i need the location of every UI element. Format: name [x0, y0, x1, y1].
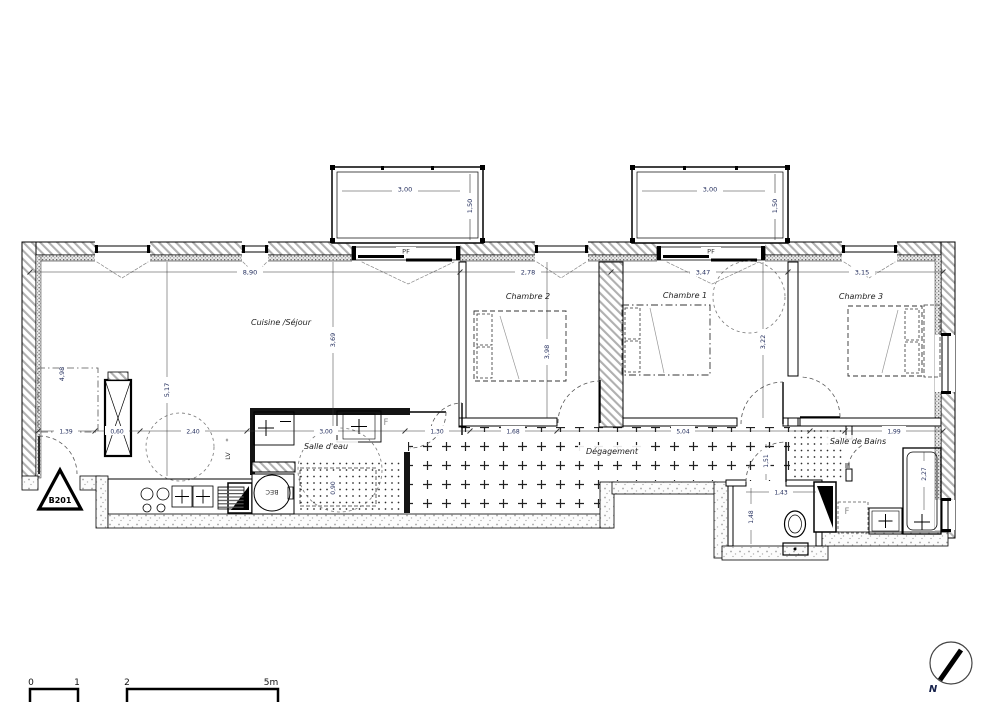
scale-5m: 5m	[264, 678, 279, 688]
scale-2: 2	[124, 678, 130, 688]
dim-bottom-salle-deau: 3,00	[319, 429, 333, 436]
bed-chambre3	[848, 305, 940, 377]
dim-top-chambre1: 3,47	[696, 269, 710, 277]
dim-placard: 4,98	[58, 367, 66, 381]
dim-wc-profondeur: 1,48	[748, 510, 755, 524]
scale-bar: 0 1 2 5m	[28, 678, 278, 702]
dim-bottom-entree: 1,39	[59, 429, 73, 436]
dim-h-cuisine: 3,69	[329, 333, 337, 347]
door-chambre3	[800, 377, 840, 417]
wall-entrance	[22, 476, 38, 490]
dim-top-chambre2: 2,78	[521, 269, 535, 277]
scale-0: 0	[28, 678, 34, 688]
north-label: N	[929, 684, 938, 695]
window-chambre2	[535, 241, 588, 278]
label-f-sdb: F	[845, 507, 850, 517]
dim-bottom-gaine: 0,60	[110, 429, 124, 436]
window-chambre3-right	[935, 333, 955, 394]
scale-1: 1	[74, 678, 80, 688]
label-salle-deau: Salle d'eau	[304, 442, 348, 451]
dim-wc-largeur: 1,43	[774, 490, 788, 497]
dim-top-cuisine: 8,90	[243, 269, 257, 277]
porte-fenetre-1: PF	[352, 241, 460, 284]
window-cuisine-1	[95, 241, 150, 278]
porte-fenetre-2: PF	[657, 241, 765, 284]
sdb-washbasin	[869, 508, 902, 534]
placard-entree	[38, 368, 98, 432]
balcony2-depth: 1,50	[771, 199, 779, 213]
label-degagement: Dégagement	[586, 446, 639, 456]
label-chambre3: Chambre 3	[839, 292, 883, 301]
dim-bottom-1: 1,30	[430, 429, 444, 436]
dim-wc-porte: 1,51	[763, 454, 770, 468]
floorplan-sheet: PF PF	[0, 0, 982, 702]
floorplan-drawing: PF PF	[0, 0, 982, 702]
washer-label: BEC	[265, 488, 279, 496]
turning-circle-cuisine	[146, 413, 214, 481]
bed-chambre1	[622, 305, 710, 375]
duct-sdb	[814, 482, 836, 532]
balcony-2: 3,00 1,50	[630, 165, 790, 243]
balcony1-width: 3,00	[398, 186, 412, 194]
dim-bottom-2: 1,68	[506, 429, 520, 436]
label-f-salle-deau: F	[384, 418, 389, 428]
window-sdb-right	[935, 498, 955, 532]
dim-bottom-cuisine: 2,40	[186, 429, 200, 436]
washing-machine: BEC	[252, 474, 294, 514]
dim-h-chambre2: 3,98	[543, 345, 551, 359]
dim-top-chambre3: 3,15	[855, 269, 869, 277]
dim-h-chambre1: 3,22	[759, 335, 767, 349]
pf1-label: PF	[402, 248, 410, 256]
duct-cuisine-x	[105, 372, 131, 456]
door-chambre2	[558, 380, 600, 423]
dim-bottom-sdb: 1,99	[887, 429, 901, 436]
label-chambre1: Chambre 1	[663, 291, 707, 300]
label-lv-star: *	[224, 438, 232, 442]
bed-chambre2	[474, 311, 566, 381]
dim-kitchen-run: 5,17	[163, 383, 171, 397]
balcony2-width: 3,00	[703, 186, 717, 194]
label-chambre2: Chambre 2	[506, 292, 550, 301]
unit-label: B201	[49, 496, 72, 505]
door-entrance	[39, 436, 77, 474]
balcony-1: 3,00 1,50	[330, 165, 485, 243]
pf2-label: PF	[707, 248, 715, 256]
dim-baignoire: 2,27	[921, 467, 928, 481]
label-lv: LV	[224, 452, 232, 460]
north-arrow: N	[929, 642, 972, 695]
unit-marker: B201	[39, 470, 81, 509]
balcony1-depth: 1,50	[466, 199, 474, 213]
label-cuisine-sejour: Cuisine /Séjour	[251, 317, 312, 327]
label-salle-de-bains: Salle de Bains	[830, 437, 886, 446]
dim-bottom-degagement: 5,04	[676, 429, 690, 436]
dim-douche: 0,90	[330, 481, 337, 495]
door-chambre1	[741, 382, 783, 424]
sdb-reserve-box	[838, 502, 868, 533]
